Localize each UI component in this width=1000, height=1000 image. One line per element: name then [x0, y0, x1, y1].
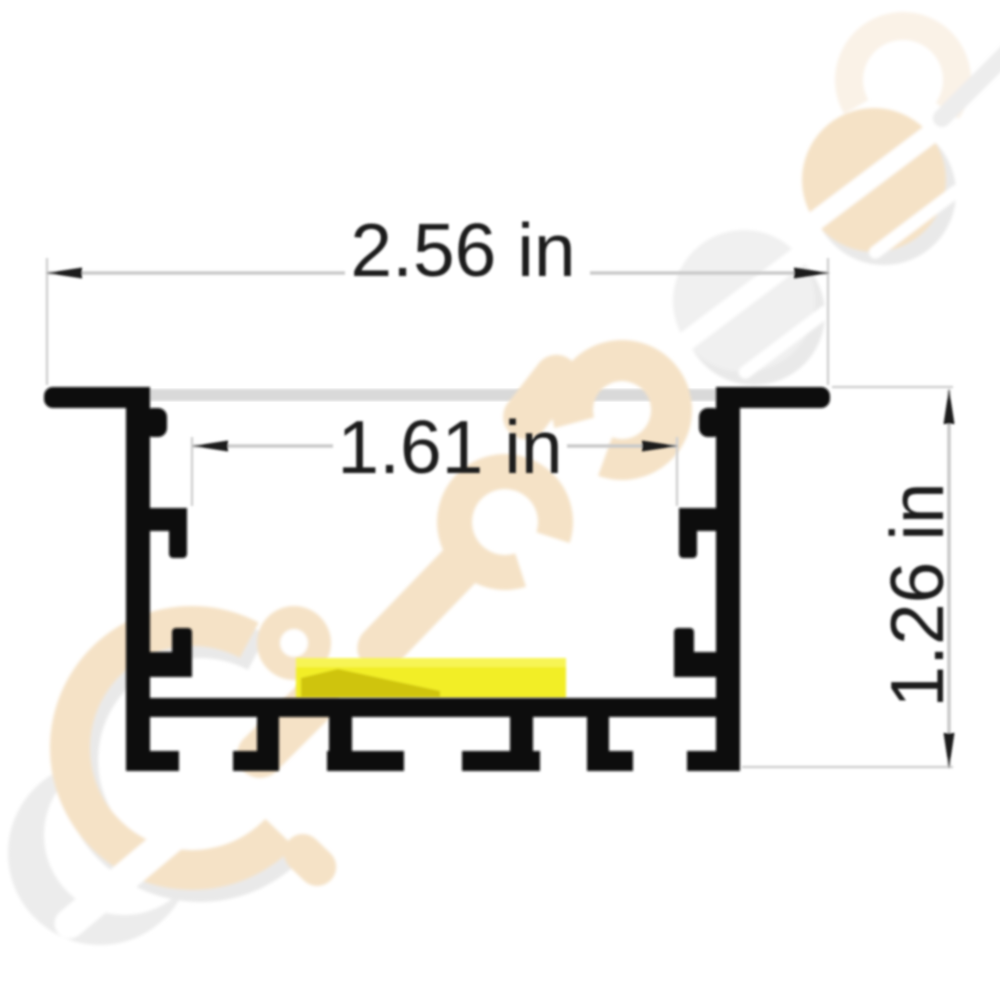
svg-text:2.56 in: 2.56 in — [350, 208, 575, 292]
svg-text:1.61 in: 1.61 in — [337, 405, 562, 489]
svg-text:1.26 in: 1.26 in — [875, 482, 959, 707]
